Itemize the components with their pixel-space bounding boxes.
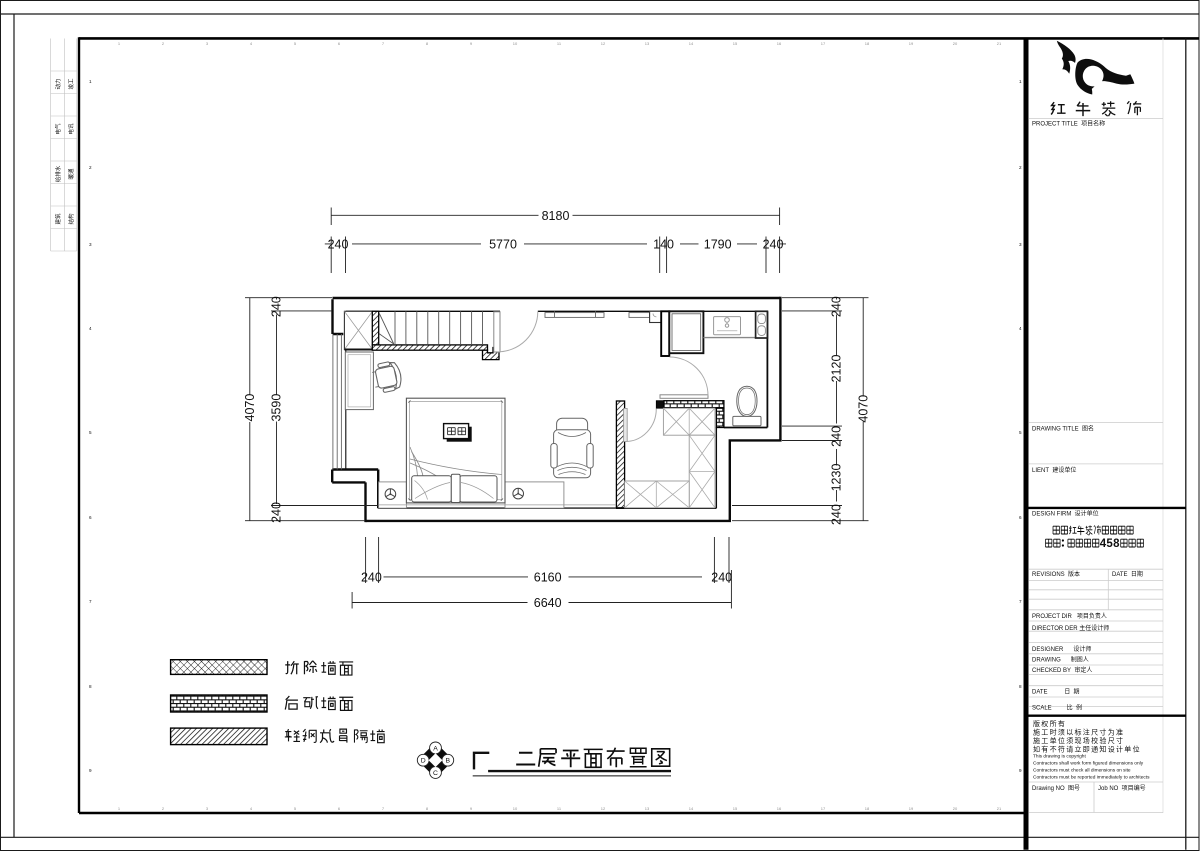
svg-text:CHECKED BY 审定人: CHECKED BY 审定人	[1032, 666, 1092, 674]
svg-text:DATE 日 期: DATE 日 期	[1032, 687, 1080, 695]
svg-text:12: 12	[601, 41, 606, 46]
svg-text:240: 240	[763, 237, 784, 251]
svg-text:REVISIONS 版本: REVISIONS 版本	[1032, 570, 1080, 578]
svg-text:Contractors must check all dim: Contractors must check all dimensions on…	[1033, 768, 1131, 774]
svg-text:240: 240	[711, 570, 732, 584]
svg-text:PROJECT DIR 项目负责人: PROJECT DIR 项目负责人	[1032, 612, 1107, 620]
svg-text:21: 21	[997, 806, 1002, 811]
svg-text:13: 13	[645, 41, 650, 46]
svg-text:18: 18	[865, 806, 870, 811]
svg-text:动力: 动力	[54, 78, 62, 89]
svg-text:3: 3	[1019, 242, 1022, 247]
svg-text:14: 14	[689, 41, 694, 46]
svg-text:6: 6	[1019, 515, 1022, 520]
svg-text:140: 140	[653, 237, 674, 251]
svg-text:6160: 6160	[534, 570, 562, 584]
svg-text:1230: 1230	[830, 464, 844, 492]
svg-text:2120: 2120	[830, 355, 844, 383]
svg-text:3: 3	[89, 242, 92, 247]
svg-text:Job NO 项目编号: Job NO 项目编号	[1098, 784, 1146, 792]
svg-text:This drawing is copyright: This drawing is copyright	[1033, 754, 1086, 760]
svg-text:6640: 6640	[534, 596, 562, 610]
svg-text:Drawing NO 图号: Drawing NO 图号	[1032, 785, 1080, 792]
svg-text:SCALE 比 例: SCALE 比 例	[1032, 704, 1082, 712]
svg-text:13: 13	[645, 806, 650, 811]
svg-text:17: 17	[821, 41, 826, 46]
svg-text:DESIGN FIRM 设计单位: DESIGN FIRM 设计单位	[1032, 509, 1099, 517]
svg-text:3590: 3590	[270, 394, 284, 422]
svg-text:DESIGNER 设计师: DESIGNER 设计师	[1032, 645, 1091, 653]
svg-text:20: 20	[953, 41, 958, 46]
svg-text:16: 16	[777, 806, 782, 811]
svg-text:240: 240	[328, 237, 349, 251]
svg-text:6: 6	[89, 515, 92, 520]
svg-text:1790: 1790	[704, 237, 732, 251]
svg-text:C: C	[433, 770, 438, 777]
svg-text:DRAWING 制图人: DRAWING 制图人	[1032, 655, 1089, 663]
svg-text:240: 240	[361, 570, 382, 584]
svg-text:4070: 4070	[857, 395, 871, 423]
svg-text:B: B	[446, 758, 451, 765]
svg-text:D: D	[421, 758, 426, 765]
svg-text:DIRECTOR DER 主任设计师: DIRECTOR DER 主任设计师	[1032, 624, 1109, 632]
svg-text:竣工: 竣工	[67, 78, 75, 90]
svg-text:2: 2	[89, 165, 92, 170]
svg-text:19: 19	[909, 806, 914, 811]
svg-text:Contractors shall work form fi: Contractors shall work form figured dime…	[1033, 761, 1144, 767]
svg-text:240: 240	[270, 502, 284, 523]
svg-text:18: 18	[865, 41, 870, 46]
svg-text:电气: 电气	[54, 123, 62, 135]
svg-text:5: 5	[89, 430, 92, 435]
svg-text:15: 15	[733, 806, 738, 811]
svg-text:如有不符请立即通知设计单位: 如有不符请立即通知设计单位	[1033, 745, 1141, 754]
svg-text:5770: 5770	[489, 237, 517, 251]
svg-text:8: 8	[1019, 684, 1022, 689]
svg-text:10: 10	[513, 806, 518, 811]
svg-text:Contractors must be reported i: Contractors must be reported immediately…	[1033, 775, 1150, 781]
svg-text:15: 15	[733, 41, 738, 46]
svg-text:结构: 结构	[67, 213, 75, 225]
svg-text:240: 240	[830, 426, 844, 447]
svg-text:1: 1	[1019, 79, 1022, 84]
svg-text:4: 4	[1019, 326, 1022, 331]
svg-text:20: 20	[953, 806, 958, 811]
svg-text:LIENT 建设单位: LIENT 建设单位	[1032, 466, 1076, 474]
svg-text:19: 19	[909, 41, 914, 46]
svg-text:DRAWING TITLE 图名: DRAWING TITLE 图名	[1032, 425, 1094, 433]
svg-text:4: 4	[89, 326, 92, 331]
svg-text:9: 9	[1019, 768, 1022, 773]
svg-text:电讯: 电讯	[67, 123, 75, 135]
svg-text:给排水: 给排水	[54, 165, 62, 182]
svg-text:240: 240	[830, 296, 844, 317]
svg-text:17: 17	[821, 806, 826, 811]
svg-text:12: 12	[601, 806, 606, 811]
svg-text:PROJECT TITLE 项目名称: PROJECT TITLE 项目名称	[1032, 120, 1105, 128]
svg-text:1: 1	[89, 79, 92, 84]
svg-text:施工单位须现场校验尺寸: 施工单位须现场校验尺寸	[1033, 736, 1124, 745]
svg-text:建筑: 建筑	[54, 213, 62, 225]
svg-text:458: 458	[1100, 538, 1120, 550]
svg-text:2: 2	[1019, 165, 1022, 170]
svg-text:16: 16	[777, 41, 782, 46]
svg-text:DATE 日期: DATE 日期	[1112, 570, 1143, 578]
svg-text:8: 8	[89, 684, 92, 689]
svg-text:8180: 8180	[542, 209, 570, 223]
svg-text:240: 240	[830, 504, 844, 525]
svg-text:施工时须以标注尺寸为准: 施工时须以标注尺寸为准	[1033, 728, 1124, 737]
svg-text:7: 7	[89, 599, 92, 604]
svg-text:版权所有: 版权所有	[1033, 719, 1066, 728]
svg-text:4070: 4070	[243, 394, 257, 422]
svg-text:暖通: 暖通	[67, 168, 75, 180]
svg-text:21: 21	[997, 41, 1002, 46]
svg-text:7: 7	[1019, 599, 1022, 604]
svg-text:14: 14	[689, 806, 694, 811]
svg-text:A: A	[433, 745, 438, 752]
svg-text:5: 5	[1019, 430, 1022, 435]
svg-text:9: 9	[89, 768, 92, 773]
svg-text:240: 240	[270, 296, 284, 317]
svg-text:10: 10	[513, 41, 518, 46]
